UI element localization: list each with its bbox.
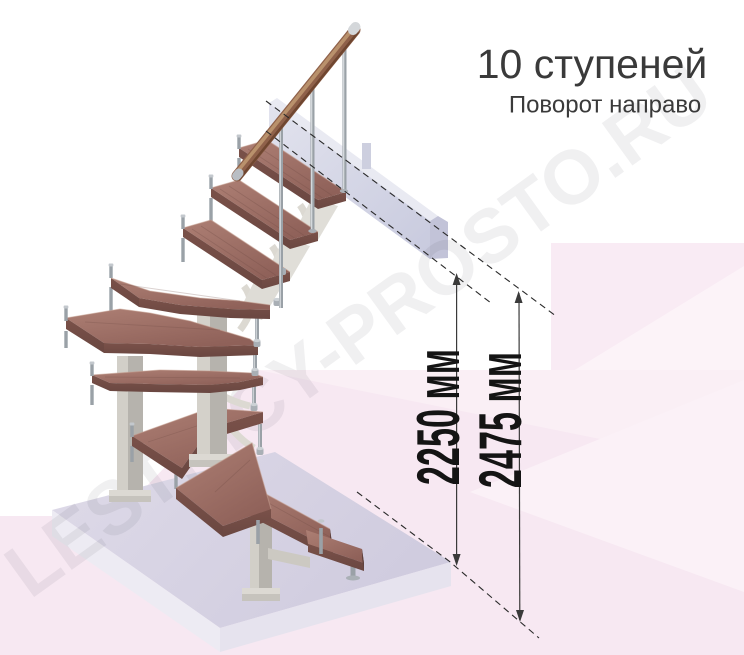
svg-text:2250 мм: 2250 мм xyxy=(406,349,472,485)
svg-text:10 ступеней: 10 ступеней xyxy=(477,41,708,87)
svg-text:2475 мм: 2475 мм xyxy=(468,352,534,488)
svg-text:Поворот направо: Поворот направо xyxy=(509,92,701,119)
